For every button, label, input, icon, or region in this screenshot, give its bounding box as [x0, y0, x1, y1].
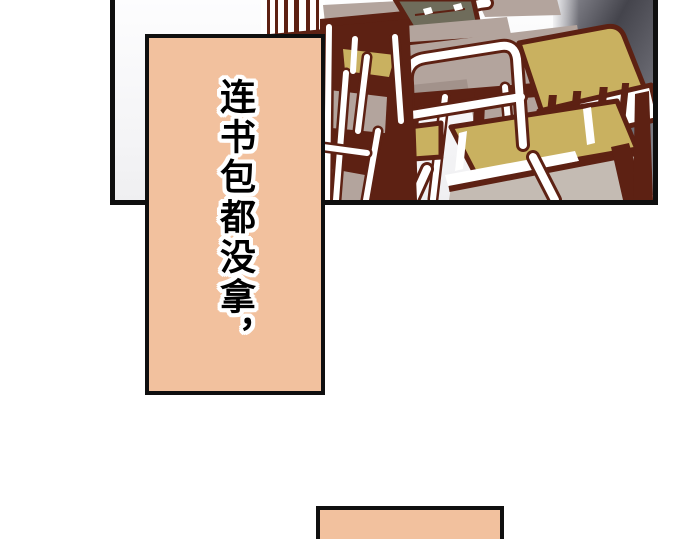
- speech-text: 连书包都没拿，: [217, 38, 253, 391]
- left-cluster: [321, 19, 417, 200]
- speech-bubble: 连书包都没拿，: [145, 34, 325, 395]
- speech-bubble-partial: [316, 506, 504, 539]
- comic-page: 连书包都没拿，: [0, 0, 690, 539]
